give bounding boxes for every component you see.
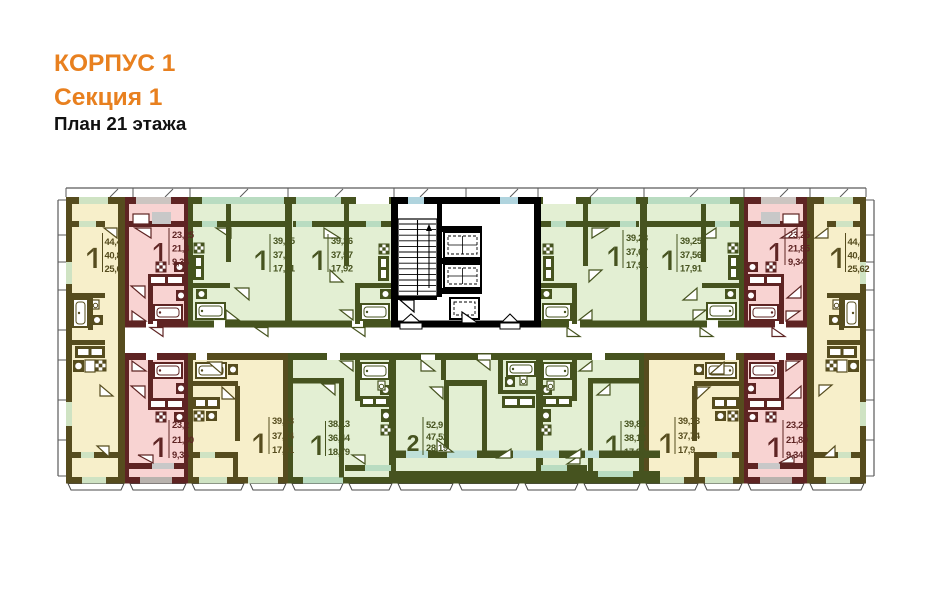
svg-text:17,91: 17,91 <box>272 444 294 455</box>
svg-text:39,26: 39,26 <box>331 235 353 246</box>
svg-text:36,44: 36,44 <box>328 432 351 443</box>
svg-text:23,25: 23,25 <box>172 229 194 240</box>
svg-text:39,83: 39,83 <box>624 418 646 429</box>
svg-text:44,4: 44,4 <box>105 236 123 247</box>
svg-text:23,2: 23,2 <box>172 419 189 430</box>
svg-text:40,8: 40,8 <box>105 250 122 261</box>
svg-text:39,28: 39,28 <box>626 232 648 243</box>
svg-text:37,56: 37,56 <box>680 249 702 260</box>
svg-text:25,62: 25,62 <box>848 263 870 274</box>
svg-text:9,34: 9,34 <box>786 449 804 460</box>
svg-text:39,25: 39,25 <box>273 235 295 246</box>
svg-text:17,9: 17,9 <box>678 444 695 455</box>
svg-text:9,34: 9,34 <box>172 256 190 267</box>
svg-text:37,74: 37,74 <box>272 430 295 441</box>
svg-text:52,9: 52,9 <box>426 419 443 430</box>
svg-text:17,91: 17,91 <box>626 259 648 270</box>
svg-text:23,25: 23,25 <box>788 229 810 240</box>
svg-text:37,67: 37,67 <box>626 246 648 257</box>
svg-text:Секция 1: Секция 1 <box>54 84 162 111</box>
svg-text:21,8: 21,8 <box>172 243 189 254</box>
svg-text:21,85: 21,85 <box>788 243 810 254</box>
svg-text:17,91: 17,91 <box>680 263 702 274</box>
svg-text:КОРПУС 1: КОРПУС 1 <box>54 50 175 77</box>
svg-text:44,4: 44,4 <box>848 236 866 247</box>
svg-text:39,25: 39,25 <box>680 235 702 246</box>
svg-text:9,34: 9,34 <box>172 449 190 460</box>
svg-text:25,6: 25,6 <box>105 263 122 274</box>
svg-text:17,92: 17,92 <box>331 263 353 274</box>
svg-text:37,57: 37,57 <box>331 249 353 260</box>
svg-text:37,6: 37,6 <box>273 249 290 260</box>
svg-text:40,4: 40,4 <box>848 250 866 261</box>
svg-text:9,34: 9,34 <box>788 256 806 267</box>
svg-text:21,80: 21,80 <box>786 434 808 445</box>
svg-text:21,80: 21,80 <box>172 434 194 445</box>
svg-text:37,74: 37,74 <box>678 430 701 441</box>
svg-text:17,97: 17,97 <box>624 446 646 457</box>
svg-text:39,33: 39,33 <box>272 415 294 426</box>
svg-text:23,25: 23,25 <box>786 419 808 430</box>
svg-text:38,13: 38,13 <box>328 418 350 429</box>
svg-text:28,19: 28,19 <box>426 442 448 453</box>
svg-text:38,13: 38,13 <box>624 432 646 443</box>
svg-text:47,52: 47,52 <box>426 431 448 442</box>
svg-text:17,91: 17,91 <box>273 263 295 274</box>
svg-text:39,13: 39,13 <box>678 415 700 426</box>
svg-text:План 21 этажа: План 21 этажа <box>54 113 187 134</box>
svg-text:18,79: 18,79 <box>328 446 350 457</box>
svg-text:2: 2 <box>407 430 420 456</box>
